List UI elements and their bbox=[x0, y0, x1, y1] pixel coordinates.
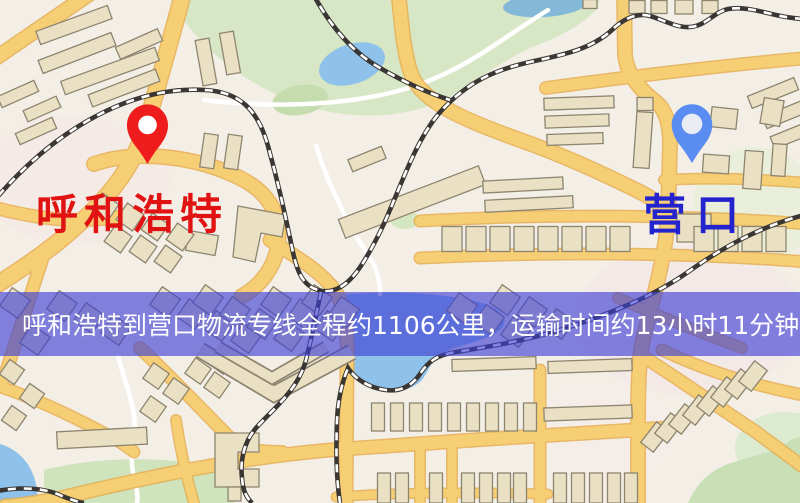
destination-label: 营口 bbox=[643, 181, 749, 243]
route-info-text: 呼和浩特到营口物流专线全程约1106公里，运输时间约13小时11分钟. bbox=[0, 306, 800, 342]
map-canvas bbox=[0, 0, 800, 503]
origin-label: 呼和浩特 bbox=[36, 181, 228, 242]
map-view[interactable]: 呼和浩特到营口物流专线全程约1106公里，运输时间约13小时11分钟. 呼和浩特… bbox=[0, 0, 800, 503]
route-info-banner: 呼和浩特到营口物流专线全程约1106公里，运输时间约13小时11分钟. bbox=[0, 292, 800, 356]
origin-pin-icon[interactable] bbox=[124, 103, 171, 166]
destination-pin-icon[interactable] bbox=[669, 102, 715, 166]
